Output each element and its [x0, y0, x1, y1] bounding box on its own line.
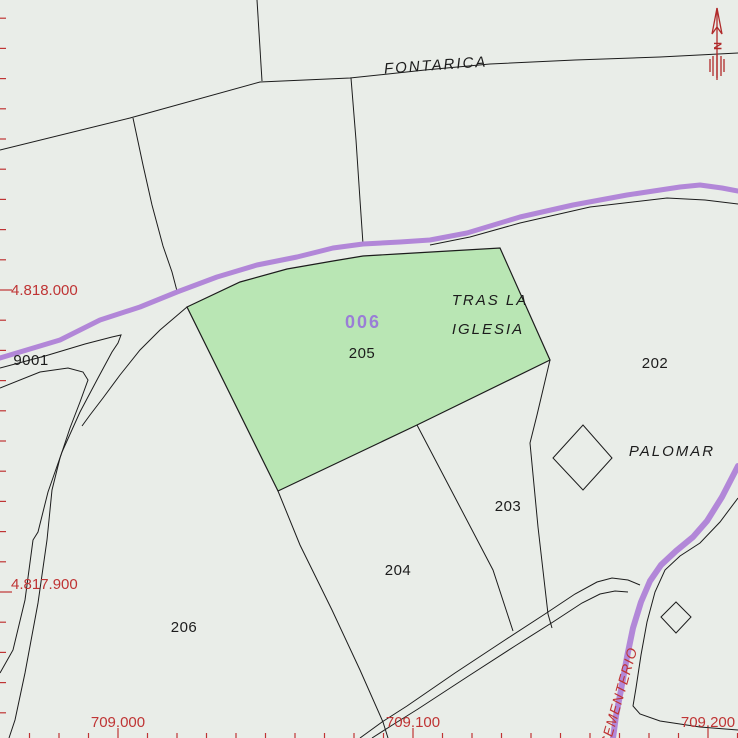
cadastral-map: FONTARICA 9001 006 205 TRAS LA IGLESIA 2…	[0, 0, 738, 738]
toponym-tras-la: TRAS LA	[452, 292, 529, 309]
grid-label-y-4817900: 4.817.900	[11, 576, 78, 593]
grid-label-x-709200: 709.200	[681, 714, 735, 731]
parcel-label-203: 203	[495, 498, 522, 515]
parcel-label-205: 205	[349, 345, 376, 362]
grid-label-x-709100: 709.100	[386, 714, 440, 731]
grid-label-x-709000: 709.000	[91, 714, 145, 731]
parcel-code-006: 006	[345, 312, 381, 332]
parcel-label-204: 204	[385, 562, 412, 579]
parcel-label-202: 202	[642, 355, 669, 372]
parcel-label-206: 206	[171, 619, 198, 636]
grid-label-y-4818000: 4.818.000	[11, 282, 78, 299]
north-letter: N	[711, 42, 723, 50]
toponym-palomar: PALOMAR	[629, 443, 715, 460]
toponym-iglesia: IGLESIA	[452, 321, 524, 338]
parcel-label-9001: 9001	[13, 352, 48, 369]
